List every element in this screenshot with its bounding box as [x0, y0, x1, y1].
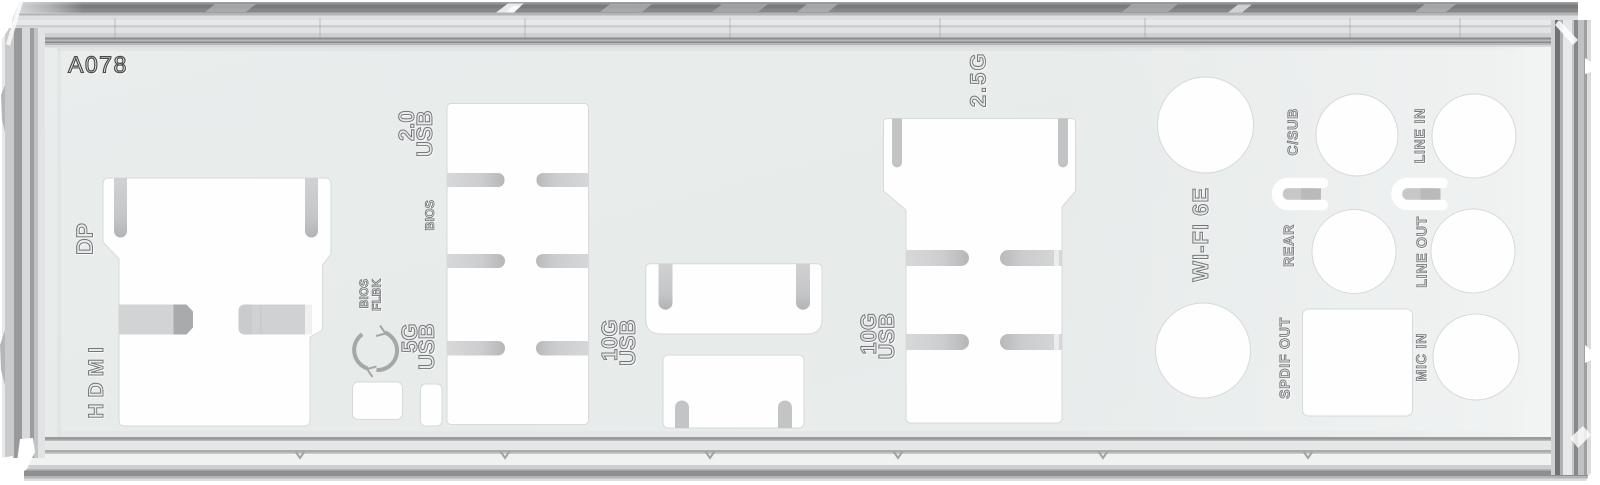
svg-text:A078: A078	[68, 52, 128, 78]
svg-text:REAR: REAR	[1281, 224, 1297, 267]
svg-text:C/SUB: C/SUB	[1284, 108, 1300, 156]
svg-text:BIOS: BIOS	[423, 200, 437, 231]
svg-text:10GUSB: 10GUSB	[597, 320, 640, 366]
svg-text:2.5G: 2.5G	[966, 52, 991, 108]
svg-text:LINE OUT: LINE OUT	[1414, 216, 1430, 288]
svg-text:LINE IN: LINE IN	[1412, 108, 1428, 163]
svg-text:DP: DP	[72, 223, 98, 255]
svg-text:MIC IN: MIC IN	[1413, 333, 1429, 381]
svg-text:10GUSB: 10GUSB	[856, 313, 899, 359]
svg-text:HDMI: HDMI	[85, 341, 108, 419]
svg-text:SPDIF OUT: SPDIF OUT	[1277, 317, 1293, 399]
svg-text:BIOSFLBK: BIOSFLBK	[357, 279, 384, 311]
svg-text:WI-FI 6E: WI-FI 6E	[1188, 187, 1213, 282]
